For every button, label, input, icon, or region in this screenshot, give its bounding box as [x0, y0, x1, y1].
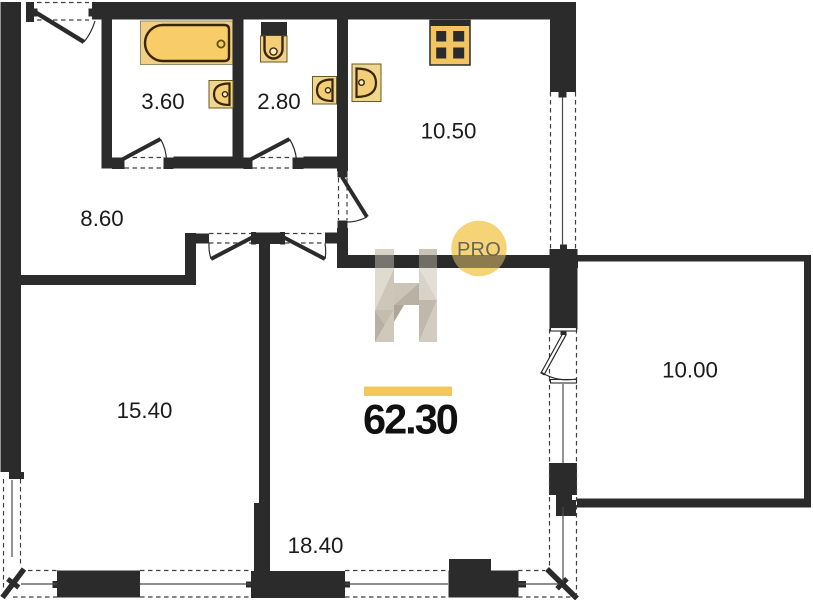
svg-text:8.60: 8.60	[80, 206, 123, 231]
svg-text:2.80: 2.80	[257, 89, 300, 114]
svg-text:15.40: 15.40	[117, 398, 173, 423]
svg-text:10.50: 10.50	[421, 119, 477, 144]
svg-text:10.00: 10.00	[662, 358, 718, 383]
svg-text:18.40: 18.40	[288, 533, 344, 558]
svg-text:3.60: 3.60	[141, 89, 184, 114]
svg-text:PRO: PRO	[457, 239, 501, 261]
svg-text:62.30: 62.30	[363, 396, 458, 443]
